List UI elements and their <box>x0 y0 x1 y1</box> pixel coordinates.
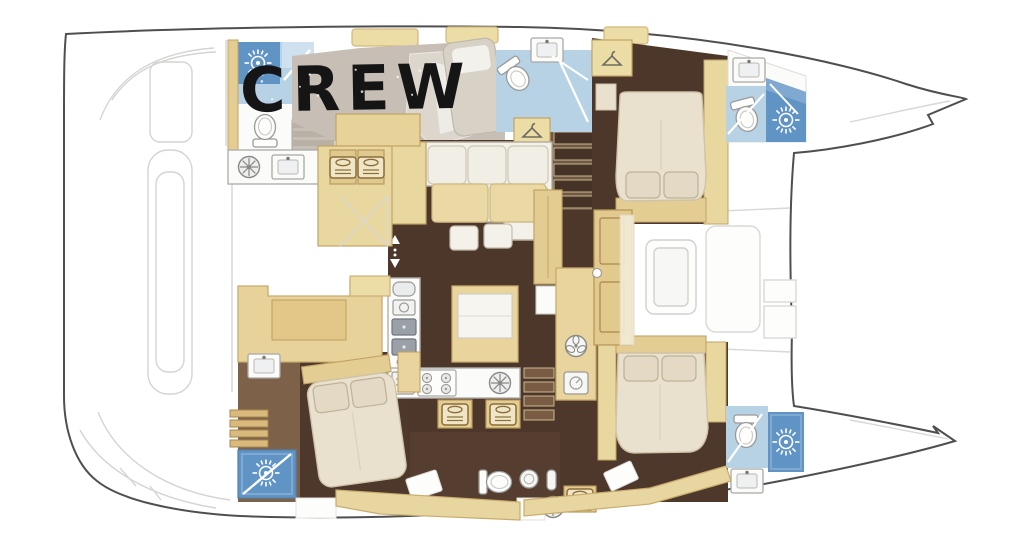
stbd-forward-cabin <box>592 38 728 224</box>
coffee-machine-icon <box>393 300 415 315</box>
nightstand <box>398 352 420 392</box>
sink-icon <box>733 58 765 82</box>
sun-icon <box>773 429 800 456</box>
hanging-locker-fwd <box>592 40 632 76</box>
hanging-locker-saloon <box>514 118 550 144</box>
galley-window <box>536 286 558 314</box>
floorplan-canvas: CREW <box>0 0 1024 551</box>
crew-galley-counter <box>228 146 327 184</box>
fan-icon <box>565 336 587 357</box>
dial-icon <box>564 372 588 394</box>
pillow <box>312 382 349 413</box>
pillow <box>624 356 658 381</box>
sink-icon <box>531 38 563 62</box>
crew-label-group: CREW <box>239 50 472 127</box>
bunk-icon <box>358 157 384 178</box>
port-shower <box>238 450 296 498</box>
bunk-icon <box>330 157 356 178</box>
hob-wheel-icon <box>490 373 511 394</box>
bunk-icon <box>490 404 516 425</box>
sink-icon <box>731 469 763 493</box>
galley-island <box>452 286 518 362</box>
hob-wheel-icon <box>239 157 260 178</box>
toilet-icon <box>734 415 758 448</box>
kettle-icon <box>393 282 415 296</box>
washer-icon <box>520 470 538 488</box>
stove-icon <box>418 370 456 396</box>
fore-cockpit-table <box>646 240 696 314</box>
pillow <box>350 377 387 408</box>
pillow <box>662 356 696 381</box>
yacht-floorplan: CREW <box>0 0 1024 551</box>
crew-label: CREW <box>239 50 472 127</box>
pillow <box>626 172 660 198</box>
toilet-icon <box>479 470 512 494</box>
ottoman <box>450 226 478 250</box>
door-knob <box>593 269 602 278</box>
fore-cockpit-door <box>593 210 635 345</box>
bottle-icon <box>547 470 556 490</box>
sink-icon <box>248 354 280 378</box>
sink-icon <box>272 155 304 179</box>
ottoman <box>484 224 512 248</box>
bunk-icon <box>442 404 468 425</box>
pillow <box>664 172 698 198</box>
